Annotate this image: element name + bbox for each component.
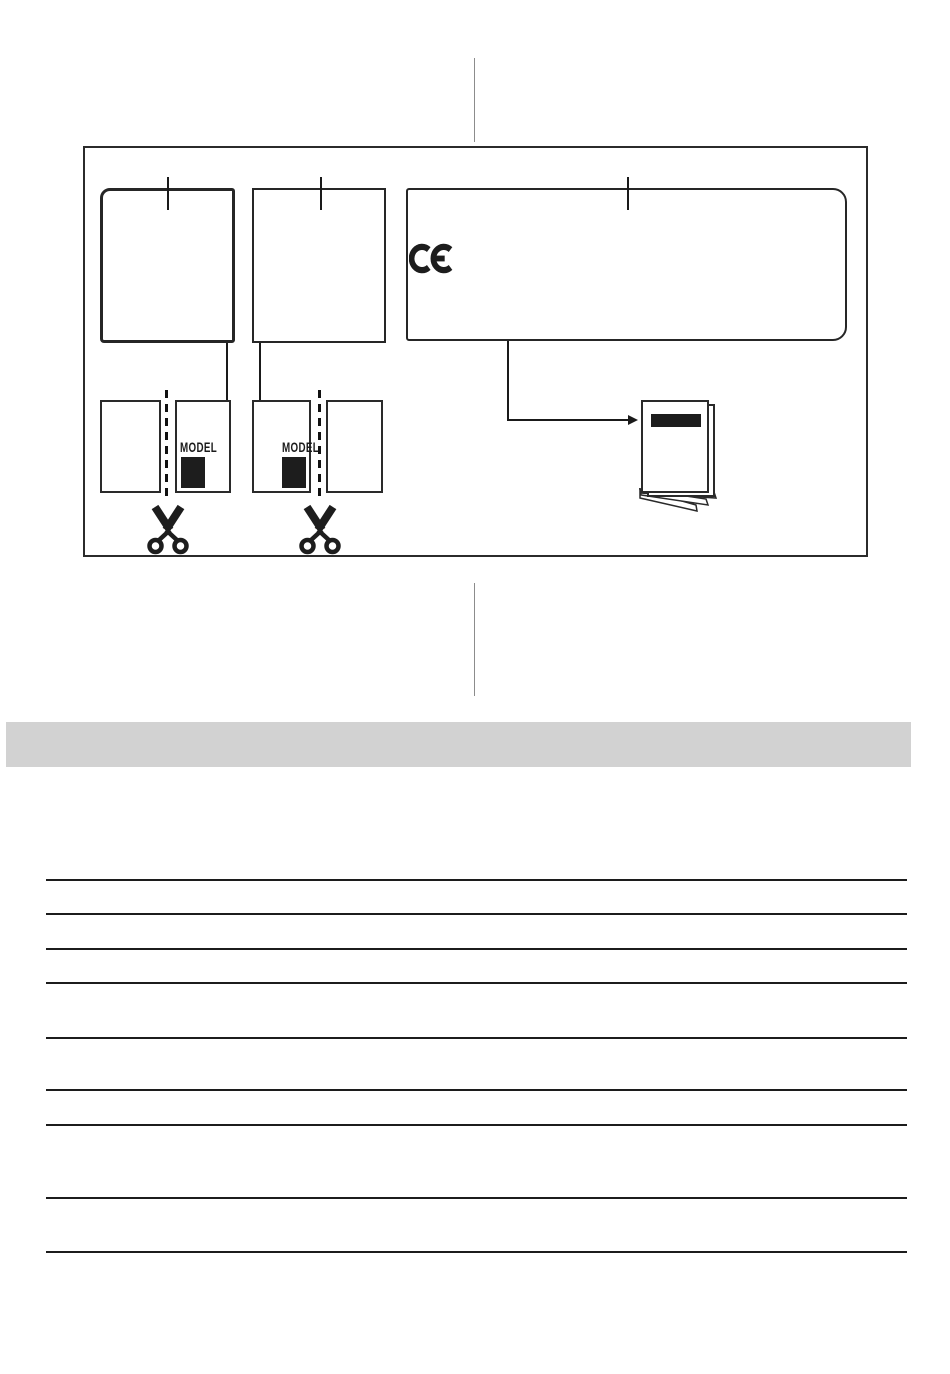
label-box-middle bbox=[252, 188, 386, 343]
leader-line-rating-label bbox=[507, 341, 509, 421]
label-box-middle-pointer-line bbox=[320, 177, 322, 210]
rating-label-box bbox=[406, 188, 847, 341]
table-rule-line bbox=[46, 982, 907, 984]
label-box-left-pointer-line bbox=[167, 177, 169, 210]
table-rule-line bbox=[46, 1251, 907, 1253]
table-rule-line bbox=[46, 1197, 907, 1199]
model-label-2: MODEL bbox=[282, 440, 319, 454]
dashed-cut-line-1 bbox=[165, 390, 168, 498]
scissors-icon bbox=[144, 503, 192, 555]
document-page: MODEL MODEL bbox=[0, 0, 950, 1374]
label-box-left bbox=[100, 188, 235, 343]
dashed-cut-line-2 bbox=[318, 390, 321, 498]
arrow-right-icon bbox=[628, 415, 638, 425]
table-rule-line bbox=[46, 1037, 907, 1039]
bottom-separator-line bbox=[474, 583, 475, 696]
scissors-icon bbox=[296, 503, 344, 555]
table-rule-line bbox=[46, 948, 907, 950]
ce-mark-icon bbox=[409, 242, 456, 275]
model-number-block-1 bbox=[181, 457, 205, 488]
section-title-bar bbox=[6, 722, 911, 767]
table-rule-line bbox=[46, 913, 907, 915]
cut-card-blank-2 bbox=[326, 400, 383, 493]
rating-label-box-pointer-line bbox=[627, 177, 629, 210]
model-number-block-2 bbox=[282, 457, 306, 488]
model-label-1: MODEL bbox=[180, 440, 217, 454]
booklet-title-block bbox=[651, 414, 701, 427]
cut-card-blank-1 bbox=[100, 400, 161, 493]
table-rule-line bbox=[46, 1089, 907, 1091]
table-rule-line bbox=[46, 1124, 907, 1126]
table-rule-line bbox=[46, 879, 907, 881]
leader-line-rating-label-horizontal bbox=[507, 419, 629, 421]
top-separator-line bbox=[474, 58, 475, 142]
